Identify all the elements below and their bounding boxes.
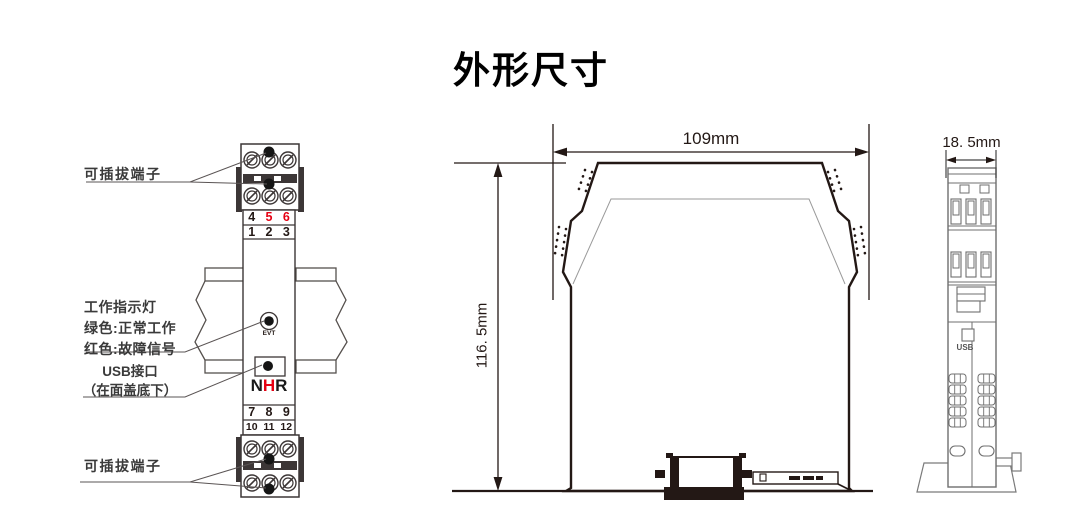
terminal-11: 11 [263, 421, 274, 433]
terminal-block-bottom [236, 435, 304, 497]
terminal-9: 9 [283, 405, 290, 419]
logo-letter-n: N [251, 376, 263, 395]
label-usb-port: USB接口 （在面盖底下） [69, 362, 191, 400]
terminal-3: 3 [283, 225, 290, 239]
terminal-numbers-row-101112: 10 11 12 [243, 419, 295, 434]
terminal-6: 6 [283, 210, 290, 224]
usb-label-line-1: USB接口 [69, 362, 191, 381]
height-dimension-arrow [494, 163, 503, 491]
terminal-numbers-row-456: 4 5 6 [243, 209, 295, 224]
indicator-line-3: 红色:故障信号 [84, 339, 204, 360]
leader-dot [263, 361, 273, 371]
height-dimension-label: 116. 5mm [474, 286, 491, 386]
leader-dot [264, 484, 275, 495]
usb-port-end [962, 329, 974, 341]
terminal-4: 4 [248, 210, 255, 224]
terminal-block-top [236, 144, 304, 212]
label-pluggable-terminal-bottom: 可插拔端子 [84, 456, 196, 476]
label-work-indicator: 工作指示灯 绿色:正常工作 红色:故障信号 [84, 297, 204, 360]
terminal-5: 5 [266, 210, 273, 224]
terminal-8: 8 [266, 405, 273, 419]
left-device-front-view [236, 144, 304, 497]
indicator-line-2: 绿色:正常工作 [84, 318, 204, 339]
usb-label-line-2: （在面盖底下） [69, 381, 191, 400]
width-dimension-label: 109mm [641, 129, 781, 149]
page-title: 外形尺寸 [431, 40, 631, 94]
terminal-numbers-row-123: 1 2 3 [243, 224, 295, 239]
thickness-dimension-label: 18. 5mm [924, 134, 1019, 151]
terminal-numbers-row-789: 7 8 9 [243, 404, 295, 419]
terminal-2: 2 [266, 225, 273, 239]
led-label: EVT [256, 330, 282, 337]
logo-letter-r: R [275, 376, 287, 395]
outline-dimensions-page: 外形尺寸 可插拔端子 工作指示灯 绿色:正常工作 红色:故障信号 USB接口 （… [0, 0, 1080, 523]
logo-letter-h: H [263, 376, 275, 395]
terminal-1: 1 [248, 225, 255, 239]
leader-dot [264, 147, 275, 158]
end-view-drawing [917, 150, 1021, 492]
indicator-line-1: 工作指示灯 [84, 297, 204, 318]
device-side-outline [563, 163, 857, 491]
terminal-10: 10 [246, 421, 258, 433]
terminal-7: 7 [248, 405, 255, 419]
terminal-12: 12 [280, 421, 292, 433]
side-view-drawing [452, 124, 873, 500]
nhr-logo: NHR [243, 376, 295, 396]
usb-label-end-view: USB [950, 343, 980, 352]
label-pluggable-terminal-top: 可插拔端子 [84, 164, 196, 184]
